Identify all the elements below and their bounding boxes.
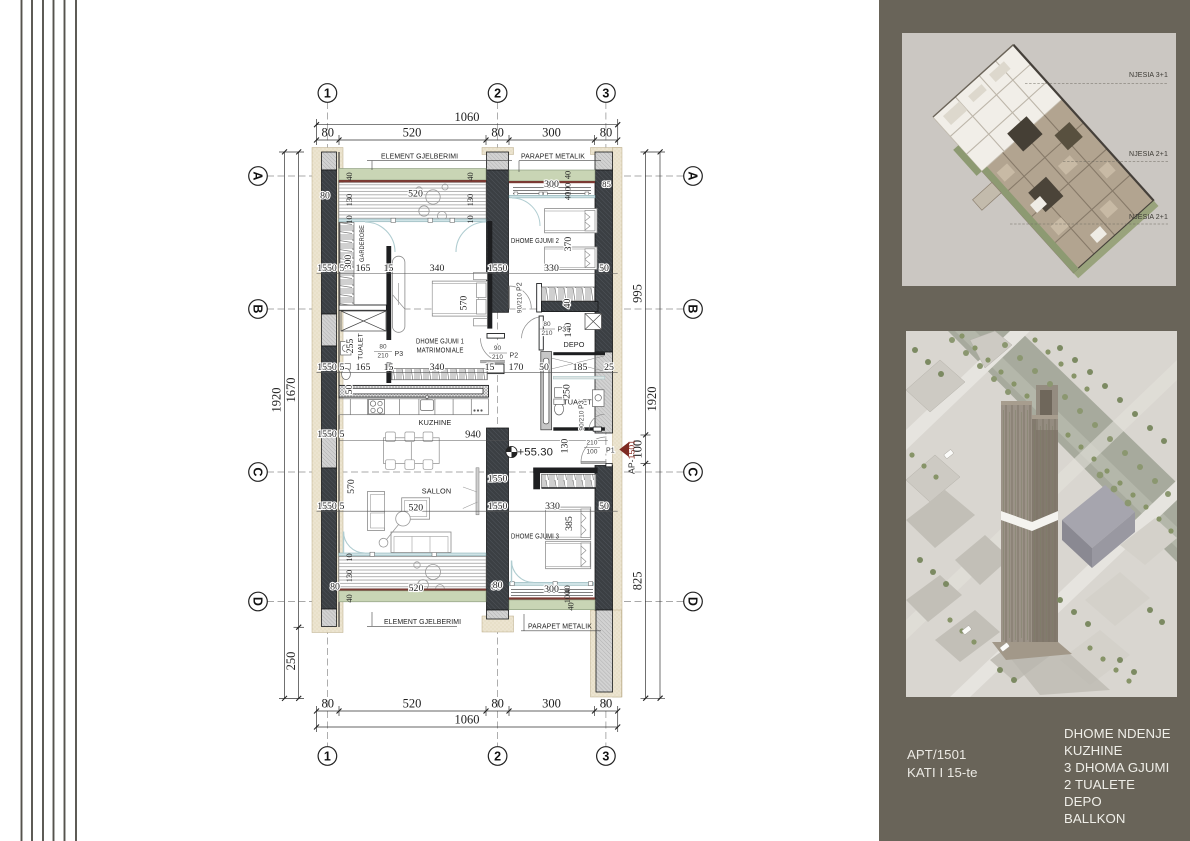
svg-text:+55.30: +55.30 <box>518 447 553 459</box>
svg-text:210: 210 <box>378 353 389 360</box>
svg-text:1: 1 <box>324 87 331 101</box>
svg-text:KATI I 15-te: KATI I 15-te <box>907 765 978 780</box>
svg-text:85: 85 <box>602 179 611 189</box>
svg-text:P3: P3 <box>579 400 586 409</box>
svg-text:570: 570 <box>459 296 470 311</box>
svg-text:130: 130 <box>560 439 571 454</box>
svg-text:210: 210 <box>587 440 598 447</box>
svg-text:250: 250 <box>284 652 298 671</box>
svg-text:80: 80 <box>321 125 334 139</box>
svg-text:C: C <box>251 467 265 476</box>
svg-text:40: 40 <box>564 171 573 179</box>
svg-text:A: A <box>251 171 265 180</box>
svg-text:385: 385 <box>564 516 575 531</box>
svg-text:1550: 1550 <box>488 263 508 274</box>
svg-text:1060: 1060 <box>455 713 480 727</box>
svg-text:NJESIA 3+1: NJESIA 3+1 <box>1129 72 1168 79</box>
svg-text:130: 130 <box>345 570 354 582</box>
svg-text:80: 80 <box>600 125 613 139</box>
svg-text:50: 50 <box>344 385 355 395</box>
svg-text:DEPO: DEPO <box>1064 794 1102 809</box>
svg-text:10: 10 <box>345 215 354 223</box>
svg-text:3: 3 <box>602 750 609 764</box>
svg-text:DHOME NDENJE: DHOME NDENJE <box>1064 726 1171 741</box>
svg-text:10: 10 <box>466 215 475 223</box>
svg-text:90/210: 90/210 <box>579 410 586 430</box>
svg-text:B: B <box>251 304 265 313</box>
svg-text:995: 995 <box>631 284 645 303</box>
svg-text:90/210: 90/210 <box>517 293 524 313</box>
svg-text:170: 170 <box>509 362 524 373</box>
svg-text:210: 210 <box>542 330 553 337</box>
svg-text:P2: P2 <box>510 353 519 360</box>
svg-text:D: D <box>686 597 700 606</box>
svg-text:130: 130 <box>466 194 475 206</box>
svg-text:520: 520 <box>403 125 422 139</box>
svg-text:2: 2 <box>494 750 501 764</box>
svg-text:DHOME GJUMI 2: DHOME GJUMI 2 <box>511 236 559 245</box>
svg-text:300: 300 <box>544 584 559 595</box>
svg-text:40: 40 <box>466 172 475 180</box>
svg-text:940: 940 <box>465 430 481 441</box>
svg-text:SALLON: SALLON <box>422 487 451 496</box>
svg-text:300: 300 <box>343 255 354 270</box>
svg-text:80: 80 <box>600 696 613 710</box>
svg-text:255: 255 <box>345 339 356 354</box>
svg-text:5: 5 <box>340 362 345 373</box>
svg-text:80: 80 <box>379 344 387 351</box>
svg-text:80: 80 <box>493 580 503 591</box>
svg-text:10: 10 <box>345 553 354 561</box>
svg-text:90: 90 <box>494 345 502 352</box>
svg-text:570: 570 <box>346 479 357 494</box>
svg-text:1: 1 <box>324 750 331 764</box>
svg-text:1550: 1550 <box>488 501 508 512</box>
svg-text:2: 2 <box>494 87 501 101</box>
svg-text:330: 330 <box>545 501 560 512</box>
svg-text:25: 25 <box>604 362 614 373</box>
svg-text:40: 40 <box>564 192 573 200</box>
svg-text:130: 130 <box>345 194 354 206</box>
svg-text:100: 100 <box>563 591 572 603</box>
svg-text:ELEMENT GJELBERIMI: ELEMENT GJELBERIMI <box>384 619 461 626</box>
svg-text:1060: 1060 <box>455 110 480 124</box>
svg-text:KUZHINE: KUZHINE <box>419 418 452 427</box>
svg-text:P1: P1 <box>606 448 615 455</box>
svg-text:300: 300 <box>542 125 561 139</box>
svg-text:5: 5 <box>340 429 345 440</box>
svg-text:1550: 1550 <box>317 501 337 512</box>
svg-text:C: C <box>686 467 700 476</box>
svg-text:80: 80 <box>320 191 330 202</box>
svg-text:1550: 1550 <box>488 474 508 485</box>
svg-text:40: 40 <box>567 602 576 610</box>
svg-text:BALLKON: BALLKON <box>1064 811 1126 826</box>
svg-text:2 TUALETE: 2 TUALETE <box>1064 777 1135 792</box>
svg-text:165: 165 <box>356 263 371 274</box>
svg-text:5: 5 <box>340 501 345 512</box>
svg-text:40: 40 <box>345 172 354 180</box>
svg-text:40: 40 <box>345 594 354 602</box>
svg-text:330: 330 <box>544 263 559 274</box>
svg-text:A: A <box>686 171 700 180</box>
svg-text:1920: 1920 <box>645 387 659 412</box>
svg-text:50: 50 <box>599 501 609 512</box>
svg-text:520: 520 <box>409 583 424 594</box>
svg-text:NJESIA 2+1: NJESIA 2+1 <box>1129 151 1168 158</box>
svg-text:1550: 1550 <box>317 263 337 274</box>
svg-text:520: 520 <box>408 503 423 514</box>
svg-text:KUZHINE: KUZHINE <box>1064 743 1123 758</box>
svg-text:3: 3 <box>602 87 609 101</box>
svg-text:15: 15 <box>384 263 394 274</box>
svg-text:300: 300 <box>542 696 561 710</box>
svg-text:370: 370 <box>563 237 574 252</box>
svg-text:520: 520 <box>403 696 422 710</box>
svg-text:80: 80 <box>543 321 551 328</box>
svg-text:D: D <box>251 597 265 606</box>
svg-text:P2: P2 <box>517 282 524 291</box>
svg-text:520: 520 <box>408 189 423 200</box>
svg-text:185: 185 <box>573 362 588 373</box>
svg-text:250: 250 <box>562 384 573 399</box>
svg-text:340: 340 <box>430 263 445 274</box>
svg-text:15: 15 <box>485 362 495 373</box>
svg-text:TUALET: TUALET <box>358 333 365 360</box>
svg-text:80: 80 <box>330 582 340 593</box>
svg-text:50: 50 <box>599 263 609 274</box>
svg-text:ELEMENT GJELBERIMI: ELEMENT GJELBERIMI <box>381 153 458 160</box>
svg-text:100: 100 <box>587 449 598 456</box>
svg-text:DHOME GJUMI 1: DHOME GJUMI 1 <box>416 337 464 346</box>
svg-text:300: 300 <box>544 179 559 190</box>
svg-text:165: 165 <box>356 362 371 373</box>
svg-text:80: 80 <box>491 696 504 710</box>
svg-text:DEPO: DEPO <box>563 340 584 349</box>
svg-text:P3: P3 <box>558 327 567 334</box>
svg-text:80: 80 <box>491 125 504 139</box>
svg-text:40: 40 <box>562 299 573 309</box>
svg-text:B: B <box>686 304 700 313</box>
svg-text:80: 80 <box>321 696 334 710</box>
svg-text:210: 210 <box>492 354 503 361</box>
svg-text:15: 15 <box>384 362 394 373</box>
svg-text:1670: 1670 <box>284 378 298 403</box>
svg-text:PARAPET METALIK: PARAPET METALIK <box>521 153 585 160</box>
svg-text:P3: P3 <box>395 351 404 358</box>
svg-text:50: 50 <box>539 362 549 373</box>
svg-text:1550: 1550 <box>317 362 337 373</box>
svg-text:1550: 1550 <box>317 429 337 440</box>
svg-text:1920: 1920 <box>270 388 284 413</box>
svg-text:NJESIA 2+1: NJESIA 2+1 <box>1129 214 1168 221</box>
svg-text:3 DHOMA GJUMI: 3 DHOMA GJUMI <box>1064 760 1169 775</box>
svg-text:340: 340 <box>430 362 445 373</box>
svg-text:PARAPET METALIK: PARAPET METALIK <box>528 624 592 631</box>
svg-text:DHOME GJUMI 3: DHOME GJUMI 3 <box>511 532 559 541</box>
svg-text:AP-1501: AP-1501 <box>627 440 637 474</box>
svg-text:825: 825 <box>631 572 645 591</box>
svg-text:GARDEROBE: GARDEROBE <box>359 225 366 262</box>
svg-text:APT/1501: APT/1501 <box>907 747 966 762</box>
svg-text:MATRIMONIALE: MATRIMONIALE <box>417 346 464 355</box>
